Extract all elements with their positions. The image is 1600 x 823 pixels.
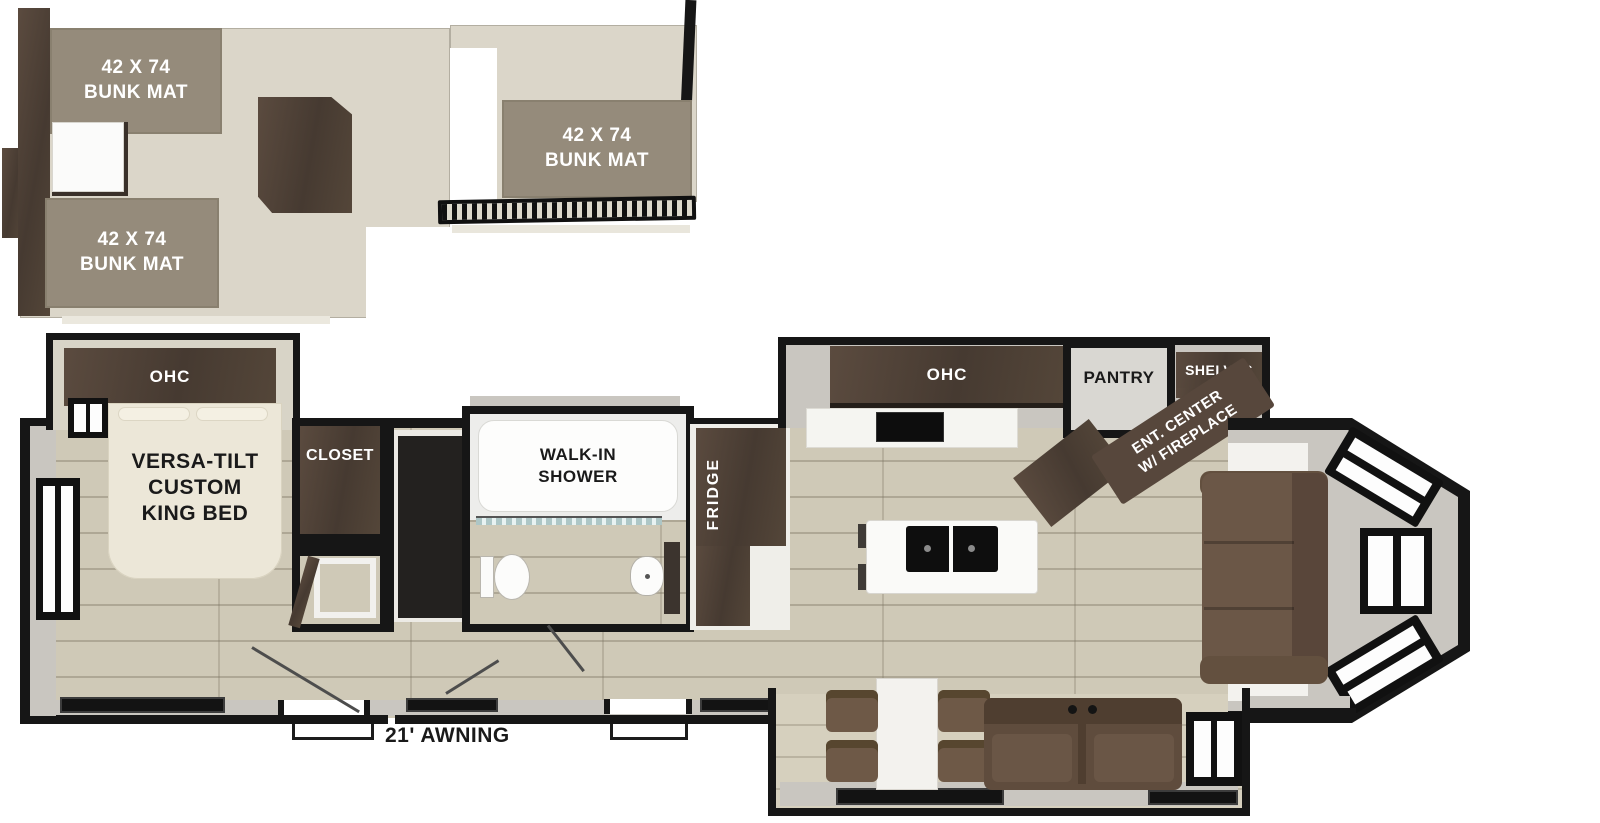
closet: CLOSET xyxy=(300,426,380,534)
bedroom-ohc-label: OHC xyxy=(150,367,191,387)
bath-counter-panel xyxy=(664,542,680,614)
exterior-left-wall xyxy=(20,418,30,724)
sofa-cushion-line-2 xyxy=(1204,607,1294,610)
dinette-chair-2 xyxy=(938,690,990,732)
toilet-bowl xyxy=(494,554,530,600)
loft-bunk-mat-left-bottom: 42 X 74 BUNK MAT xyxy=(45,198,219,308)
dinette-chair-1 xyxy=(826,690,878,732)
island-sink-drain-left xyxy=(924,545,931,552)
loft-stair-gap xyxy=(450,48,497,200)
bedroom-bottom-window xyxy=(60,697,225,713)
bedroom-left-window xyxy=(36,478,80,620)
cap-bottom-wall-joint xyxy=(1242,708,1356,718)
island-sink-drain-right xyxy=(968,545,975,552)
shower-glass-door xyxy=(476,516,662,525)
sofa-cushion-line-1 xyxy=(1204,541,1294,544)
dinette-table xyxy=(876,678,938,790)
exterior-bottom-wall-mid xyxy=(395,715,775,724)
bunk-mat-label: 42 X 74 BUNK MAT xyxy=(80,228,184,277)
loft-railing xyxy=(438,196,696,224)
toilet-tank xyxy=(480,556,494,598)
bunk-mat-label: 42 X 74 BUNK MAT xyxy=(545,124,649,173)
kitchen-ohc-label: OHC xyxy=(927,365,968,385)
theater-cupholder-left xyxy=(1068,705,1077,714)
sofa-armrest-bottom xyxy=(1200,656,1328,684)
theater-seat-cushion-right xyxy=(1094,734,1174,782)
cooktop xyxy=(876,412,944,442)
entry-step-bedroom xyxy=(292,724,374,740)
bath-sink-drain xyxy=(645,574,650,579)
theater-seats-console xyxy=(1078,704,1086,784)
sofa-back xyxy=(1292,473,1328,683)
rv-floorplan: 42 X 74 BUNK MAT 42 X 74 BUNK MAT 42 X 7… xyxy=(0,0,1600,823)
theater-seat-cushion-left xyxy=(992,734,1072,782)
loft-railing-shadow xyxy=(452,225,690,233)
cap-window-middle xyxy=(1360,528,1432,614)
awning-label: 21' AWNING xyxy=(385,724,555,750)
entry-door-main xyxy=(604,699,692,714)
rear-slide-side-window xyxy=(1186,712,1242,786)
dinette-chair-4 xyxy=(938,740,990,782)
island-sink-divider xyxy=(949,526,953,572)
kitchen-bottom-window xyxy=(700,698,772,712)
dinette-chair-3 xyxy=(826,740,878,782)
kitchen-ohc-cabinet: OHC xyxy=(830,346,1064,408)
pantry-label: PANTRY xyxy=(1084,368,1155,388)
fridge-label: FRIDGE xyxy=(700,444,728,544)
loft-nightstand xyxy=(52,122,128,196)
bed-pillow-right xyxy=(196,407,268,421)
loft-bunk-mat-left-top: 42 X 74 BUNK MAT xyxy=(50,28,222,134)
king-bed-label: VERSA-TILT CUSTOM KING BED xyxy=(108,428,282,548)
loft-bunk-mat-right: 42 X 74 BUNK MAT xyxy=(502,100,692,198)
theater-cupholder-right xyxy=(1088,705,1097,714)
fridge-lower xyxy=(696,546,750,626)
passage-frame xyxy=(314,558,376,618)
shower-label: WALK-IN SHOWER xyxy=(478,428,678,504)
entry-step-main xyxy=(610,724,688,740)
rear-slide-window-right xyxy=(1148,790,1238,805)
closet-label: CLOSET xyxy=(306,447,374,465)
bunk-mat-label: 42 X 74 BUNK MAT xyxy=(84,56,188,105)
hall-bottom-window xyxy=(406,698,498,712)
rear-slide-window-left xyxy=(836,788,1004,805)
loft-dresser xyxy=(258,97,352,213)
bedroom-slide-window xyxy=(68,398,108,438)
bed-pillow-left xyxy=(118,407,190,421)
loft-floor-shadow xyxy=(62,316,330,324)
loft-floor-cutout xyxy=(366,227,452,320)
exterior-bottom-wall-left xyxy=(20,715,388,724)
bedroom-right-wall xyxy=(380,418,394,632)
